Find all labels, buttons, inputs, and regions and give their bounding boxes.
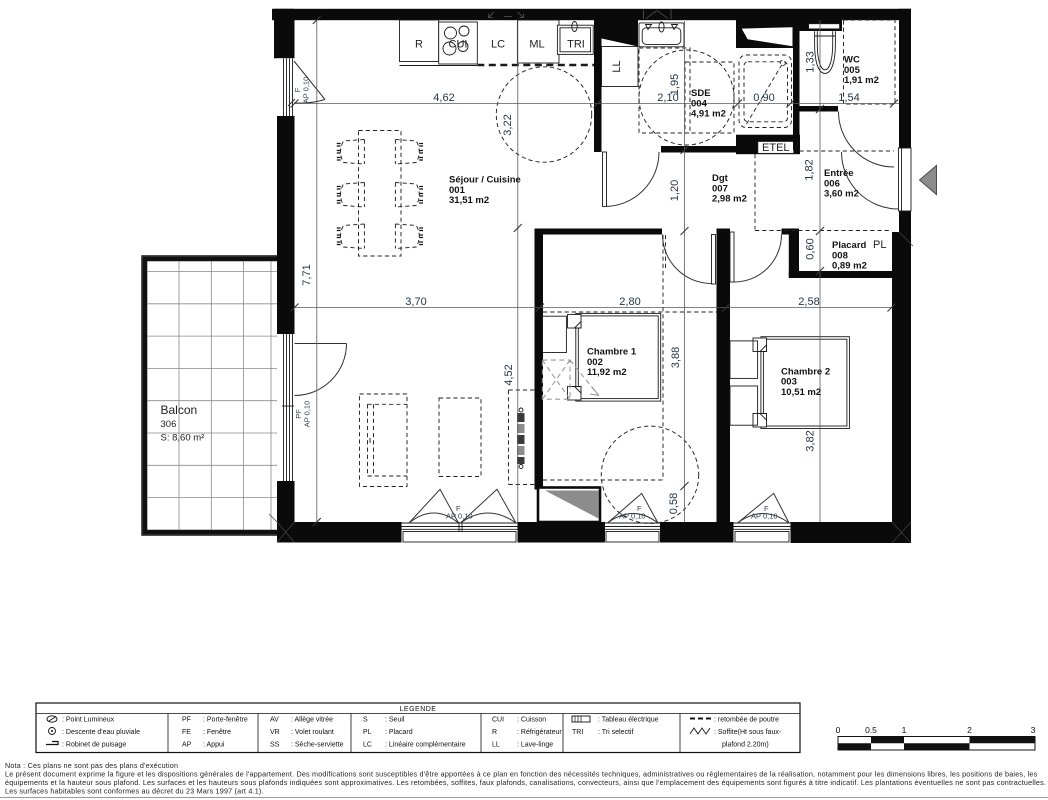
svg-text:FE: FE — [182, 729, 191, 736]
svg-text:: Robinet de puisage: : Robinet de puisage — [62, 742, 126, 749]
svg-text:2,58: 2,58 — [798, 296, 819, 308]
svg-text:AP 0,10: AP 0,10 — [446, 512, 473, 521]
svg-text:TRI: TRI — [567, 39, 585, 51]
svg-text:VR: VR — [270, 729, 280, 736]
svg-text:: Placard: : Placard — [385, 729, 413, 736]
svg-text:S: S — [363, 717, 368, 724]
svg-text:3,88: 3,88 — [670, 347, 682, 368]
svg-text:: Volet roulant: : Volet roulant — [291, 729, 334, 736]
svg-text:AP: AP — [182, 742, 192, 749]
svg-text:plafond 2.20m): plafond 2.20m) — [722, 742, 769, 749]
svg-text:: Linéaire complémentaire: : Linéaire complémentaire — [385, 742, 466, 749]
svg-text:CUI: CUI — [449, 39, 468, 51]
svg-text:LEGENDE: LEGENDE — [400, 706, 437, 713]
svg-text:1,82: 1,82 — [804, 159, 816, 180]
svg-text:SS: SS — [270, 742, 280, 749]
svg-text:TRI: TRI — [572, 729, 583, 736]
svg-text:1,95: 1,95 — [669, 74, 681, 95]
svg-text:4,62: 4,62 — [433, 92, 454, 104]
svg-text:ML: ML — [529, 39, 544, 51]
svg-text:PF: PF — [182, 717, 191, 724]
svg-text:0,89 m2: 0,89 m2 — [832, 261, 867, 272]
svg-text:: Point Lumineux: : Point Lumineux — [62, 717, 115, 724]
svg-text:3,70: 3,70 — [405, 296, 426, 308]
svg-text:: Appui: : Appui — [203, 742, 225, 749]
svg-text:1,20: 1,20 — [669, 180, 681, 201]
svg-text:: Sèche-serviette: : Sèche-serviette — [291, 742, 344, 749]
svg-text:AP 0,10: AP 0,10 — [302, 77, 311, 104]
svg-text:LL: LL — [492, 742, 500, 749]
svg-text:: Porte-fenêtre: : Porte-fenêtre — [203, 717, 248, 724]
svg-text:ETEL: ETEL — [762, 142, 790, 154]
svg-text:R: R — [492, 729, 497, 736]
svg-text:306: 306 — [161, 419, 177, 430]
svg-text:0,58: 0,58 — [668, 493, 680, 514]
svg-text:: Allège vitrée: : Allège vitrée — [291, 717, 333, 724]
svg-text:2,98 m2: 2,98 m2 — [712, 194, 747, 205]
svg-text:PL: PL — [363, 729, 372, 736]
svg-text:4,52: 4,52 — [503, 364, 515, 385]
svg-text:0.5: 0.5 — [865, 725, 877, 735]
svg-text:: Tableau électrique: : Tableau électrique — [598, 717, 659, 724]
svg-text:10,51 m2: 10,51 m2 — [781, 387, 821, 398]
svg-text:1,33: 1,33 — [805, 51, 817, 72]
svg-text:PL: PL — [873, 239, 886, 251]
svg-text:0: 0 — [836, 725, 841, 735]
svg-text:LC: LC — [491, 39, 505, 51]
svg-text:11,92 m2: 11,92 m2 — [587, 367, 627, 378]
svg-text:2,80: 2,80 — [619, 296, 640, 308]
svg-text:: Descente d'eau pluviale: : Descente d'eau pluviale — [62, 729, 140, 736]
svg-text:AP 0,10: AP 0,10 — [751, 512, 778, 521]
svg-text:: Réfrigérateur: : Réfrigérateur — [517, 729, 562, 736]
svg-text:3: 3 — [1031, 725, 1036, 735]
svg-text:LL: LL — [611, 60, 623, 72]
svg-text:3,22: 3,22 — [502, 114, 514, 135]
svg-text:: retombée de poutre: : retombée de poutre — [714, 717, 779, 724]
svg-text:Les surfaces habitables sont c: Les surfaces habitables sont conformes a… — [5, 787, 264, 796]
svg-text:AV: AV — [270, 717, 279, 724]
svg-text:0,60: 0,60 — [805, 238, 817, 259]
svg-text:3,82: 3,82 — [805, 430, 817, 451]
svg-text:CUI: CUI — [492, 717, 504, 724]
svg-text:2: 2 — [967, 725, 972, 735]
svg-text:S: 8,60 m²: S: 8,60 m² — [161, 433, 205, 444]
svg-text:1,91 m2: 1,91 m2 — [844, 75, 879, 86]
svg-text:R: R — [415, 39, 423, 51]
svg-text:0,90: 0,90 — [753, 92, 774, 104]
svg-text:AP 0,10: AP 0,10 — [303, 401, 312, 428]
svg-text:: Soffite(Ht sous faux-: : Soffite(Ht sous faux- — [714, 729, 782, 736]
svg-text:LC: LC — [363, 742, 372, 749]
svg-text:3,60 m2: 3,60 m2 — [824, 189, 859, 200]
svg-text:: Tri selectif: : Tri selectif — [598, 729, 633, 736]
svg-text:: Lave-linge: : Lave-linge — [517, 742, 553, 749]
svg-text:: Cuisson: : Cuisson — [517, 717, 546, 724]
svg-text:: Seuil: : Seuil — [385, 717, 405, 724]
svg-text:4,91 m2: 4,91 m2 — [691, 109, 726, 120]
svg-text:1: 1 — [902, 725, 907, 735]
svg-text:31,51 m2: 31,51 m2 — [449, 195, 489, 206]
svg-text:Balcon: Balcon — [161, 403, 198, 417]
svg-text:AP 0,10: AP 0,10 — [619, 512, 646, 521]
svg-text:1,54: 1,54 — [838, 92, 859, 104]
svg-text:: Fenêtre: : Fenêtre — [203, 729, 231, 736]
svg-text:7,71: 7,71 — [301, 264, 313, 285]
